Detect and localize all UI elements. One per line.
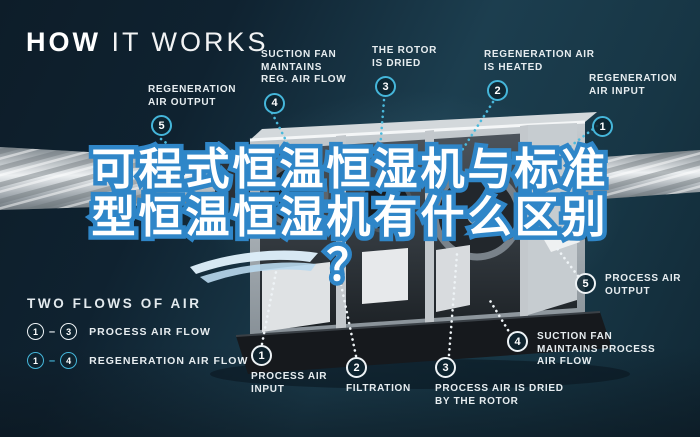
title-light: IT WORKS	[112, 27, 269, 57]
legend-row-regeneration: 1 – 4 REGENERATION AIR FLOW	[27, 352, 248, 369]
legend-two-flows: TWO FLOWS OF AIR 1 – 3 PROCESS AIR FLOW …	[27, 296, 248, 369]
legend-circle-to: 4	[60, 352, 77, 369]
callout-label: REGENERATION AIR IS HEATED	[484, 49, 595, 74]
headline-line3: ？	[0, 242, 700, 290]
callout-label: PROCESS AIR INPUT	[251, 371, 327, 396]
legend-row-process: 1 – 3 PROCESS AIR FLOW	[27, 323, 248, 340]
legend-circle-to: 3	[60, 323, 77, 340]
callout-label: REGENERATION AIR INPUT	[589, 73, 677, 98]
infographic-canvas: HOW IT WORKS REGENERATION AIR OUTPUT 5 S…	[0, 0, 700, 437]
legend-dash: –	[49, 326, 55, 338]
step-badge: 4	[264, 93, 285, 114]
step-badge: 2	[346, 357, 367, 378]
callout-label: THE ROTOR IS DRIED	[372, 45, 437, 70]
legend-dash: –	[49, 355, 55, 367]
legend-circle-from: 1	[27, 323, 44, 340]
legend-label: PROCESS AIR FLOW	[89, 326, 211, 338]
step-badge: 5	[151, 115, 172, 136]
callout-regeneration-air-output: REGENERATION AIR OUTPUT 5	[148, 84, 236, 136]
page-title: HOW IT WORKS	[26, 27, 269, 58]
callout-regeneration-air-heated: REGENERATION AIR IS HEATED 2	[484, 49, 595, 101]
legend-label: REGENERATION AIR FLOW	[89, 355, 248, 367]
callout-rotor-is-dried: THE ROTOR IS DRIED 3	[372, 45, 437, 97]
callout-process-air-input: 1 PROCESS AIR INPUT	[251, 345, 327, 396]
step-badge: 2	[487, 80, 508, 101]
legend-title: TWO FLOWS OF AIR	[27, 296, 248, 311]
step-badge: 4	[507, 331, 528, 352]
callout-process-air-dried: 3 PROCESS AIR IS DRIED BY THE ROTOR	[435, 357, 564, 408]
headline-line1: 可程式恒温恒湿机与标准	[0, 146, 700, 194]
callout-label: FILTRATION	[346, 383, 411, 396]
callout-suction-fan-reg: SUCTION FAN MAINTAINS REG. AIR FLOW 4	[261, 49, 346, 114]
callout-filtration: 2 FILTRATION	[346, 357, 411, 396]
callout-label: PROCESS AIR IS DRIED BY THE ROTOR	[435, 383, 564, 408]
headline-overlay: 可程式恒温恒湿机与标准 型恒温恒湿机有什么区别 ？ 可程式恒温恒湿机与标准 型恒…	[0, 146, 700, 290]
headline-line2: 型恒温恒湿机有什么区别	[0, 194, 700, 242]
step-badge: 1	[251, 345, 272, 366]
callout-label: REGENERATION AIR OUTPUT	[148, 84, 236, 109]
legend-circle-from: 1	[27, 352, 44, 369]
title-bold: HOW	[26, 27, 101, 57]
headline-fill-layer: 可程式恒温恒湿机与标准 型恒温恒湿机有什么区别 ？	[0, 146, 700, 290]
step-badge: 3	[435, 357, 456, 378]
step-badge: 3	[375, 76, 396, 97]
step-badge: 1	[592, 116, 613, 137]
callout-regeneration-air-input: REGENERATION AIR INPUT 1	[589, 73, 677, 137]
callout-label: SUCTION FAN MAINTAINS REG. AIR FLOW	[261, 49, 346, 87]
